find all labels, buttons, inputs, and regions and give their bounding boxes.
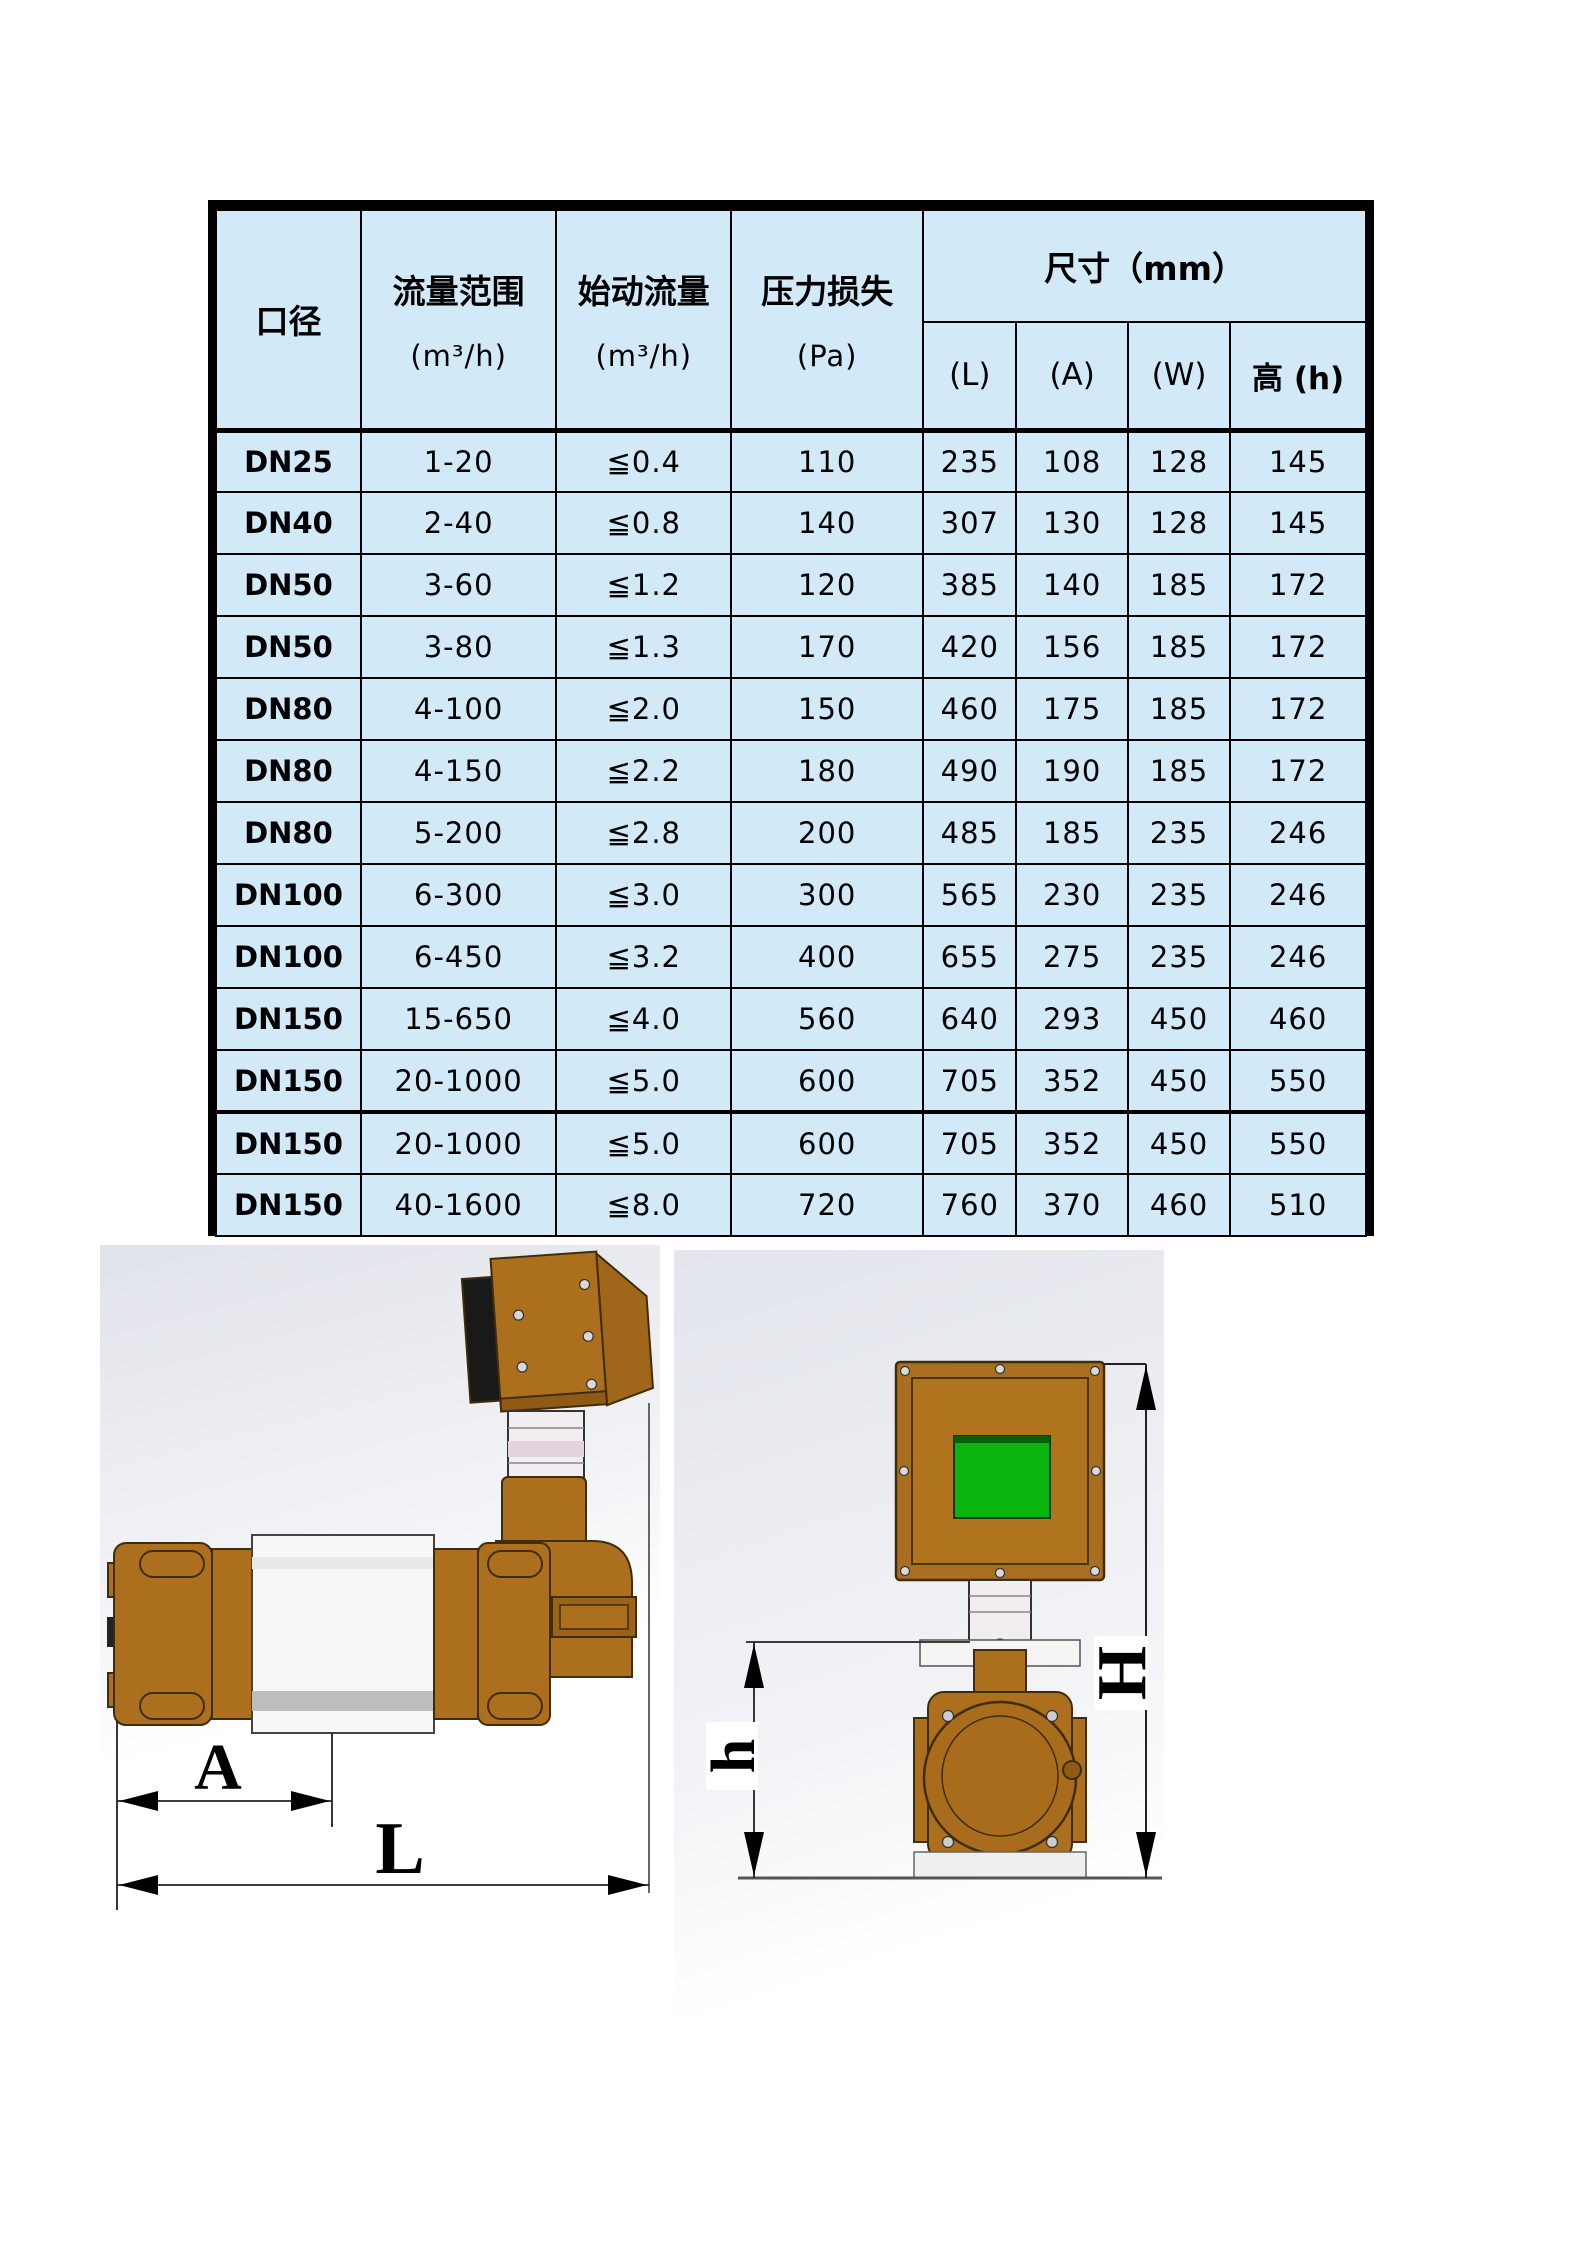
cell-flow-range: 15-650 [361, 988, 557, 1050]
cell-dim-height: 246 [1230, 802, 1366, 864]
table-row: DN503-60≦1.2120385140185172 [216, 554, 1366, 616]
table-row: DN805-200≦2.8200485185235246 [216, 802, 1366, 864]
spec-table-header: 口径 流量范围 (m³/h) 始动流量 (m³/h) [216, 210, 1366, 430]
cell-dim-l: 485 [923, 802, 1016, 864]
header-row-top: 口径 流量范围 (m³/h) 始动流量 (m³/h) [216, 210, 1366, 322]
cell-diameter: DN40 [216, 492, 361, 554]
dimension-h-label: h [700, 1739, 768, 1773]
cell-dim-a: 108 [1016, 430, 1128, 492]
dimension-l-label: L [375, 1808, 424, 1890]
cell-pressure-loss: 720 [731, 1174, 923, 1236]
document-page: 口径 流量范围 (m³/h) 始动流量 (m³/h) [0, 0, 1587, 2245]
header-flow-range: 流量范围 (m³/h) [361, 210, 557, 430]
table-row: DN15020-1000≦5.0600705352450550 [216, 1112, 1366, 1174]
cell-dim-a: 185 [1016, 802, 1128, 864]
cell-diameter: DN25 [216, 430, 361, 492]
cell-start-flow: ≦2.2 [556, 740, 731, 802]
cell-dim-height: 172 [1230, 740, 1366, 802]
cell-dim-w: 235 [1128, 802, 1230, 864]
cell-flow-range: 6-300 [361, 864, 557, 926]
cell-flow-range: 4-100 [361, 678, 557, 740]
cell-dim-a: 352 [1016, 1050, 1128, 1112]
cell-dim-height: 145 [1230, 492, 1366, 554]
cell-dim-w: 185 [1128, 616, 1230, 678]
table-row: DN15020-1000≦5.0600705352450550 [216, 1050, 1366, 1112]
cell-diameter: DN150 [216, 1174, 361, 1236]
cell-dim-w: 185 [1128, 554, 1230, 616]
front-view-neck [969, 1580, 1031, 1649]
cell-pressure-loss: 110 [731, 430, 923, 492]
side-view-left-flange [107, 1543, 252, 1725]
cell-flow-range: 6-450 [361, 926, 557, 988]
header-dim-w: (W) [1128, 322, 1230, 430]
cell-flow-range: 5-200 [361, 802, 557, 864]
header-start-flow-label: 始动流量 [578, 265, 710, 313]
cell-diameter: DN80 [216, 678, 361, 740]
header-dim-a: (A) [1016, 322, 1128, 430]
cell-dim-l: 235 [923, 430, 1016, 492]
base-plate [914, 1852, 1086, 1878]
table-row: DN402-40≦0.8140307130128145 [216, 492, 1366, 554]
cell-dim-w: 128 [1128, 430, 1230, 492]
cell-dim-a: 275 [1016, 926, 1128, 988]
cell-start-flow: ≦4.0 [556, 988, 731, 1050]
header-dimensions: 尺寸（mm） [923, 210, 1366, 322]
cell-dim-a: 175 [1016, 678, 1128, 740]
side-view-drawing: A L [100, 1245, 660, 1945]
cell-dim-a: 370 [1016, 1174, 1128, 1236]
cell-dim-a: 140 [1016, 554, 1128, 616]
dimension-a-label: A [194, 1731, 242, 1804]
cell-pressure-loss: 180 [731, 740, 923, 802]
cell-pressure-loss: 600 [731, 1050, 923, 1112]
header-pressure-loss: 压力损失 (Pa) [731, 210, 923, 430]
cell-dim-a: 156 [1016, 616, 1128, 678]
cell-pressure-loss: 560 [731, 988, 923, 1050]
table-row: DN15015-650≦4.0560640293450460 [216, 988, 1366, 1050]
spec-table: 口径 流量范围 (m³/h) 始动流量 (m³/h) [215, 209, 1367, 1237]
header-dim-height: 高 (h) [1230, 322, 1366, 430]
side-view-neck [508, 1411, 584, 1479]
cell-start-flow: ≦3.0 [556, 864, 731, 926]
cell-start-flow: ≦3.2 [556, 926, 731, 988]
cell-dim-height: 172 [1230, 616, 1366, 678]
cell-dim-height: 550 [1230, 1050, 1366, 1112]
cell-diameter: DN80 [216, 740, 361, 802]
table-row: DN15040-1600≦8.0720760370460510 [216, 1174, 1366, 1236]
side-view-meter-body [107, 1535, 550, 1733]
cell-diameter: DN50 [216, 616, 361, 678]
cell-start-flow: ≦2.8 [556, 802, 731, 864]
cell-flow-range: 3-60 [361, 554, 557, 616]
cell-dim-w: 128 [1128, 492, 1230, 554]
cell-dim-l: 460 [923, 678, 1016, 740]
front-view-display-box [896, 1362, 1104, 1580]
cell-dim-height: 246 [1230, 864, 1366, 926]
cell-dim-w: 450 [1128, 1112, 1230, 1174]
cell-diameter: DN50 [216, 554, 361, 616]
cell-flow-range: 20-1000 [361, 1050, 557, 1112]
cell-dim-a: 190 [1016, 740, 1128, 802]
cell-pressure-loss: 170 [731, 616, 923, 678]
cell-pressure-loss: 150 [731, 678, 923, 740]
cell-start-flow: ≦1.2 [556, 554, 731, 616]
cell-flow-range: 40-1600 [361, 1174, 557, 1236]
cell-diameter: DN150 [216, 1112, 361, 1174]
cell-dim-w: 185 [1128, 678, 1230, 740]
cell-dim-height: 246 [1230, 926, 1366, 988]
table-row: DN804-100≦2.0150460175185172 [216, 678, 1366, 740]
cell-pressure-loss: 200 [731, 802, 923, 864]
cell-start-flow: ≦1.3 [556, 616, 731, 678]
table-row: DN251-20≦0.4110235108128145 [216, 430, 1366, 492]
cell-dim-height: 460 [1230, 988, 1366, 1050]
cell-dim-l: 760 [923, 1174, 1016, 1236]
front-view-drawing: h H [668, 1250, 1164, 2050]
cell-dim-a: 293 [1016, 988, 1128, 1050]
side-view-chamber [252, 1535, 434, 1733]
cell-dim-l: 705 [923, 1112, 1016, 1174]
cell-dim-l: 420 [923, 616, 1016, 678]
cell-dim-l: 385 [923, 554, 1016, 616]
cell-dim-w: 235 [1128, 864, 1230, 926]
table-row: DN1006-300≦3.0300565230235246 [216, 864, 1366, 926]
header-flow-range-label: 流量范围 [393, 265, 525, 313]
cell-dim-height: 172 [1230, 678, 1366, 740]
table-row: DN503-80≦1.3170420156185172 [216, 616, 1366, 678]
cell-start-flow: ≦5.0 [556, 1050, 731, 1112]
cell-pressure-loss: 300 [731, 864, 923, 926]
cell-dim-l: 705 [923, 1050, 1016, 1112]
dimension-height-label: H [1084, 1646, 1161, 1700]
cell-dim-w: 460 [1128, 1174, 1230, 1236]
cell-start-flow: ≦2.0 [556, 678, 731, 740]
cell-pressure-loss: 400 [731, 926, 923, 988]
header-start-flow: 始动流量 (m³/h) [556, 210, 731, 430]
cell-pressure-loss: 600 [731, 1112, 923, 1174]
table-row: DN1006-450≦3.2400655275235246 [216, 926, 1366, 988]
cell-dim-l: 307 [923, 492, 1016, 554]
cell-start-flow: ≦0.4 [556, 430, 731, 492]
table-row: DN804-150≦2.2180490190185172 [216, 740, 1366, 802]
cell-dim-a: 130 [1016, 492, 1128, 554]
cell-dim-l: 565 [923, 864, 1016, 926]
lcd-screen [954, 1436, 1050, 1518]
header-flow-range-unit: (m³/h) [410, 339, 507, 373]
cell-pressure-loss: 120 [731, 554, 923, 616]
cell-diameter: DN100 [216, 864, 361, 926]
cell-dim-a: 352 [1016, 1112, 1128, 1174]
header-pressure-loss-unit: (Pa) [797, 339, 858, 373]
cell-dim-l: 640 [923, 988, 1016, 1050]
cell-diameter: DN80 [216, 802, 361, 864]
cell-dim-height: 550 [1230, 1112, 1366, 1174]
cell-diameter: DN100 [216, 926, 361, 988]
cell-start-flow: ≦0.8 [556, 492, 731, 554]
cell-pressure-loss: 140 [731, 492, 923, 554]
cell-start-flow: ≦8.0 [556, 1174, 731, 1236]
header-start-flow-unit: (m³/h) [595, 339, 692, 373]
cell-dim-w: 450 [1128, 1050, 1230, 1112]
cell-dim-w: 185 [1128, 740, 1230, 802]
header-diameter: 口径 [216, 210, 361, 430]
side-view-right-flange [434, 1543, 550, 1725]
cell-dim-l: 655 [923, 926, 1016, 988]
cell-flow-range: 4-150 [361, 740, 557, 802]
spec-table-frame: 口径 流量范围 (m³/h) 始动流量 (m³/h) [208, 200, 1374, 1236]
spec-table-body: DN251-20≦0.4110235108128145DN402-40≦0.81… [216, 430, 1366, 1236]
cell-diameter: DN150 [216, 988, 361, 1050]
cell-diameter: DN150 [216, 1050, 361, 1112]
cell-dim-l: 490 [923, 740, 1016, 802]
header-pressure-loss-label: 压力损失 [761, 265, 893, 313]
cell-dim-height: 145 [1230, 430, 1366, 492]
cell-flow-range: 1-20 [361, 430, 557, 492]
cell-dim-w: 235 [1128, 926, 1230, 988]
cell-dim-height: 510 [1230, 1174, 1366, 1236]
cell-dim-w: 450 [1128, 988, 1230, 1050]
cell-dim-height: 172 [1230, 554, 1366, 616]
header-dim-l: (L) [923, 322, 1016, 430]
cell-start-flow: ≦5.0 [556, 1112, 731, 1174]
cell-dim-a: 230 [1016, 864, 1128, 926]
cell-flow-range: 2-40 [361, 492, 557, 554]
cell-flow-range: 3-80 [361, 616, 557, 678]
cell-flow-range: 20-1000 [361, 1112, 557, 1174]
